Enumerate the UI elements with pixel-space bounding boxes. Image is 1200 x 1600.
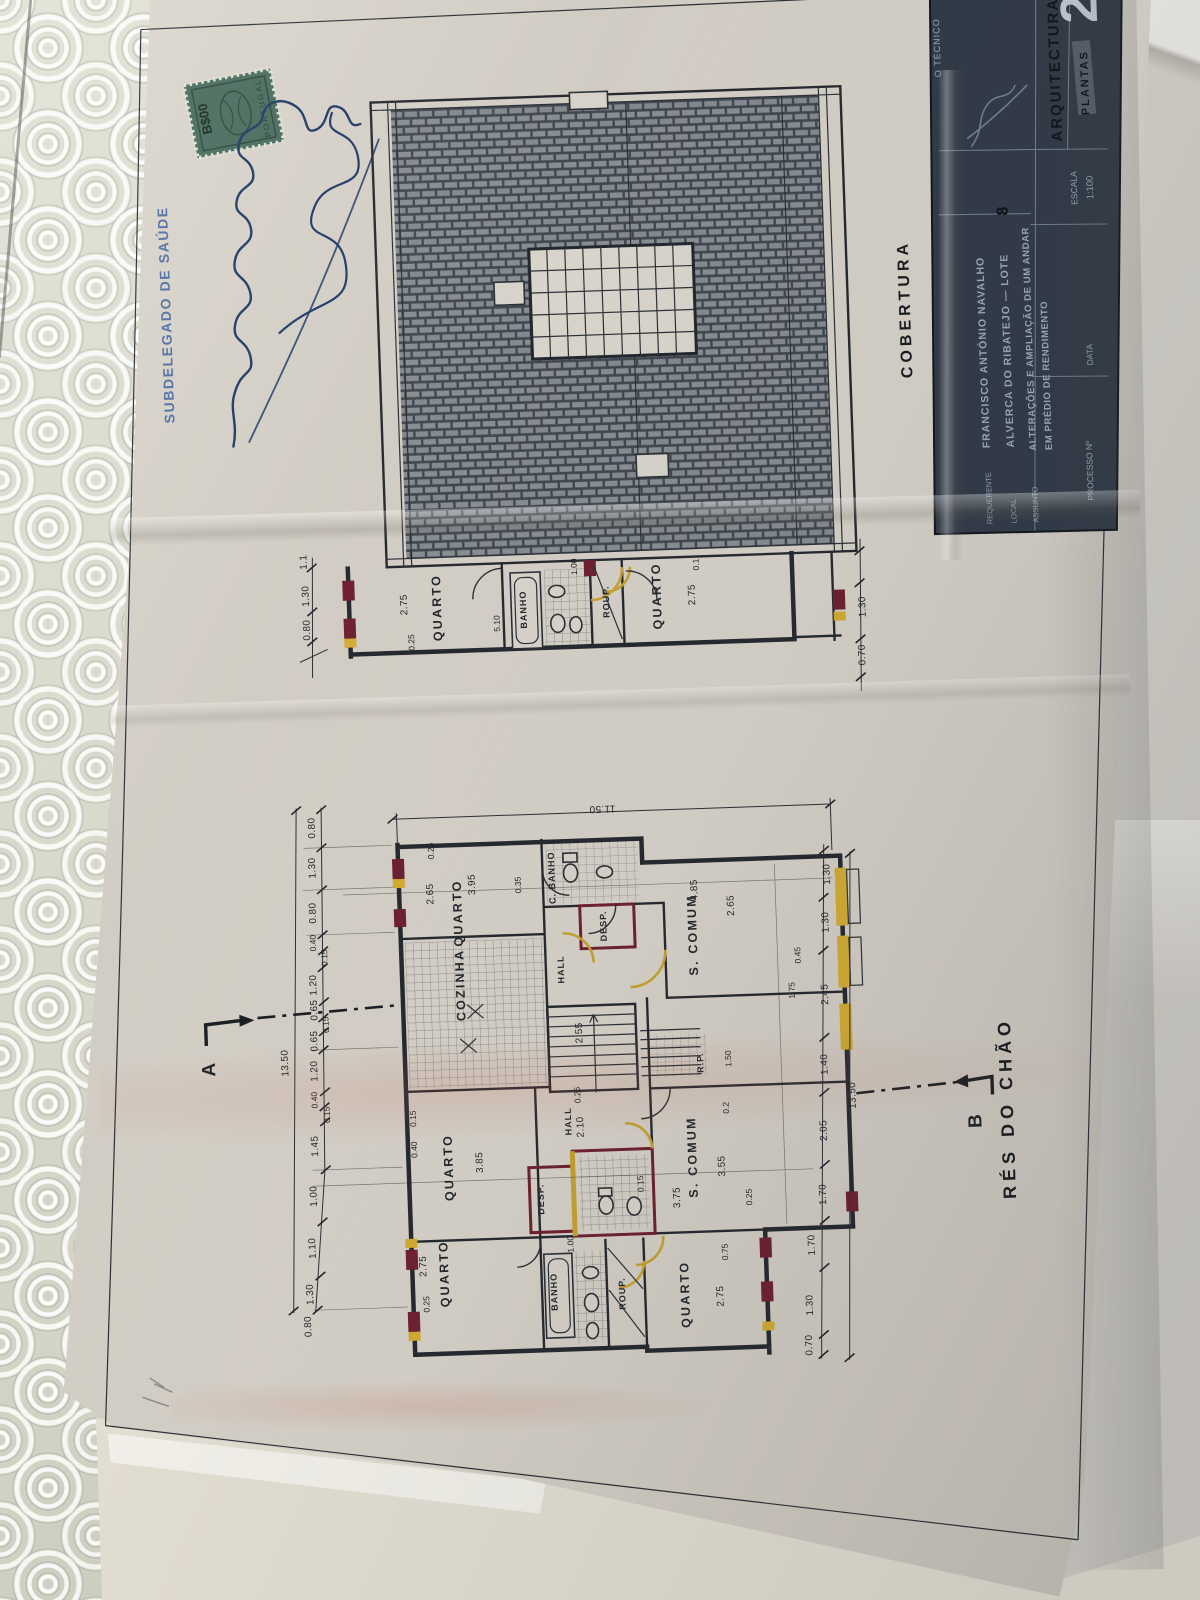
dimension-label: 1.20 [309,1060,321,1081]
room-label-desp: DESP. [598,910,609,941]
room-label-banho: BANHO [518,590,529,628]
dimension-label: 2.55 [574,1022,586,1043]
dimension-label: 0.25 [425,842,436,859]
photo-of-architectural-drawing: B$00 PORTUGAL SUBDELEGADO DE SAÚDE [0,0,1200,1600]
dimension-label: 5.10 [491,615,502,632]
balcony [847,869,861,923]
middle-floor-plan: QUARTO 2.75 0.25 BANHO 5.10 ROUP. QUARTO… [296,535,871,710]
dimension-label: 1.20 [308,974,320,995]
room-label-rp: R.P. [695,1052,706,1073]
bathroom-tiles [544,568,591,647]
dimension-label: 2.05 [818,1120,830,1141]
dimension-label: 2.65 [725,895,737,916]
sink [596,866,612,879]
dimension-label: 0.80 [307,902,319,923]
local-lot-number: 8 [995,206,1012,216]
room-label-quarto: QUARTO [450,879,466,947]
dimension-label: 0.65 [309,999,321,1020]
dimension-label: 4.85 [689,879,701,900]
dimension-label: 3.95 [467,874,479,895]
dimension-label: 2.65 [425,883,437,904]
revenue-stamp: B$00 PORTUGAL [184,69,285,158]
escala-label: ESCALA [1068,171,1079,205]
dimension-label: 1.30 [857,596,869,617]
dimension-label: 0.15 [322,1106,333,1123]
room-label-hall: HALL [555,955,566,983]
dimension-label: 0.70 [804,1334,816,1355]
dimension-label: 1.50 [723,1050,734,1067]
toilet [599,1196,614,1214]
dimension-label: 0.15 [408,1110,419,1127]
dimension-label: 0.80 [302,619,314,640]
dimension-label: 0.2 [721,1101,731,1113]
roof-plan: COBERTURA [370,81,922,567]
section-label-a: A [199,1062,220,1077]
room-label-roup: ROUP. [601,585,612,618]
dimension-label: 1.30 [307,857,319,878]
requerente-label: REQUERENTE [984,472,995,524]
toilet [563,864,578,882]
dimension-label: 1.30 [804,1294,816,1315]
title-block: O TÉCNICO ARQUITECTURA PLANTAS 2 ESCALA … [916,0,1141,536]
dimension-label: 2.75 [418,1256,430,1277]
dimension-label: 1.30 [305,1284,317,1305]
subdelegado-stamp-text: SUBDELEGADO DE SAÚDE [153,206,178,424]
dimension-label: 13.50 [280,1049,292,1076]
dimension-label: 1.70 [818,1184,830,1205]
dimension-label: 2.75 [687,584,699,605]
dimension-label: 1.1 [298,554,310,570]
section-marker-b: B [856,1073,994,1132]
dimension-label: 0.15 [320,1016,331,1033]
dimension-label: 0.25 [406,634,417,651]
dimension-label: 0.75 [720,1243,731,1260]
assunto-label: ASSUNTO [1030,486,1040,523]
bidet [586,1322,599,1338]
sheet-number: 2 [1050,0,1109,24]
room-label-roup: ROUP. [617,1277,628,1310]
dimension-label: 1.00 [308,1185,320,1206]
roof-plan-title: COBERTURA [895,240,917,379]
balcony [849,937,863,985]
dimension-label: 0.35 [513,876,524,893]
pencil-scribble [142,1377,173,1407]
roof-skylight [529,243,697,359]
dimension-label: 2.45 [820,984,832,1005]
dimension-label: 2.75 [399,594,411,615]
ground-floor-plan: 11.50 [122,782,1026,1407]
room-label-quarto: QUARTO [429,574,445,642]
dimension-label: 0.15 [635,1175,646,1192]
roof-chimney [636,453,669,477]
dimension-label: 1.30 [820,911,832,932]
processo-label: PROCESSO Nº [1084,441,1096,501]
room-label-s-comum: S. COMUM [684,1116,701,1198]
dimension-label: 1.70 [806,1234,818,1255]
dimension-label: 0.70 [857,644,869,665]
dimension-label: 0.80 [303,1316,315,1337]
dimension-label: 2.10 [575,1116,587,1137]
dimension-label: 1.10 [307,1238,319,1259]
toilet [551,614,566,632]
roof-hatch-opening [569,91,608,109]
toilet [584,1293,599,1311]
bidet [570,617,583,633]
ground-floor-title: RÉS DO CHÃO [993,1017,1020,1200]
room-label-desp: DESP. [535,1184,546,1215]
dimension-label: 0.40 [309,1091,320,1108]
kitchen-tiles [405,938,548,1089]
escala-value: 1:100 [1085,175,1097,199]
dimension-label: 1.00 [569,558,580,575]
room-label-quarto: QUARTO [677,1261,693,1329]
dimension-label: 1.75 [786,982,797,999]
sink [582,1266,598,1279]
sheet-type-label: PLANTAS [1078,50,1092,116]
dimension-label: 1.40 [819,1054,831,1075]
dimension-label: 0.40 [409,1141,420,1158]
dimension-label: 0.40 [308,934,319,951]
section-label-b: B [965,1114,986,1128]
room-label-cozinha: COZINHA [452,949,469,1022]
data-label: DATA [1084,343,1095,365]
dimension-label: 13.50 [847,1082,859,1109]
room-label-c-banho: C. BANHO [546,851,558,904]
tecnico-label: O TÉCNICO [931,18,943,77]
room-label-banho: BANHO [548,1273,559,1311]
dimension-label: 3.55 [716,1155,728,1176]
dimension-label: 3.85 [474,1152,486,1173]
dimension-label: 2.75 [715,1285,727,1306]
dimension-label: 0.25 [421,1296,432,1313]
dimension-label: 3.75 [672,1187,684,1208]
room-label-quarto: QUARTO [436,1240,452,1308]
dimension-label: 1.00 [565,1236,576,1253]
dimension-label: 0.1 [691,558,701,570]
dimension-label: 0.15 [319,949,330,966]
dimension-label: 0.65 [309,1030,321,1051]
dimension-label: 0.25 [744,1188,755,1205]
dimension-label: 1.30 [300,585,312,606]
dimension-label: 1.30 [821,863,833,884]
room-label-quarto: QUARTO [649,562,665,630]
dimension-label: 0.25 [572,1086,583,1103]
dimension-label: 1.45 [310,1135,322,1156]
architectural-drawing: B$00 PORTUGAL SUBDELEGADO DE SAÚDE [0,0,1200,1600]
room-label-quarto: QUARTO [441,1134,457,1202]
roof-chimney [494,281,525,305]
dimension-label: 0.45 [792,946,803,963]
dimension-label: 11.50 [589,802,616,814]
sink [548,585,564,598]
room-label-hall: HALL [563,1107,574,1135]
section-marker-a: A [197,1005,401,1077]
dimension-label: 0.80 [306,817,318,838]
local-label: LOCAL [1009,499,1019,524]
room-label-s-comum: S. COMUM [684,894,701,976]
toilet [627,1197,642,1215]
